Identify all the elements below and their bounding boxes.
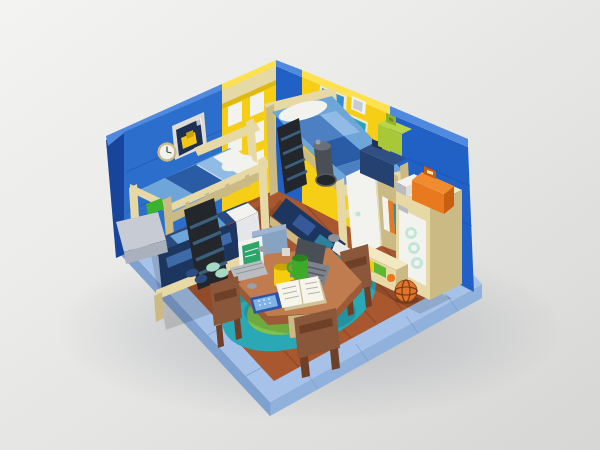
backdrop <box>0 0 600 450</box>
wall-clock <box>159 144 176 161</box>
